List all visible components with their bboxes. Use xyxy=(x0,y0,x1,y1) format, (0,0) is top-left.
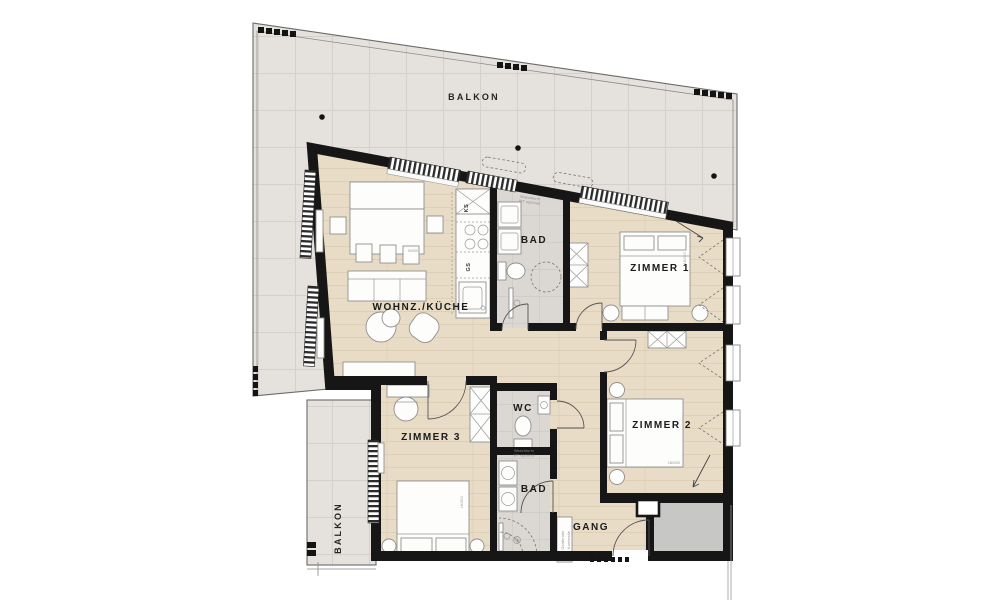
dim-bed-zimmer3: 180/200 xyxy=(460,496,464,508)
balcony-door-leaf-2 xyxy=(317,318,324,358)
dim-dining-table: 90/200 xyxy=(408,249,418,253)
label-wohnzimmer: WOHNZ./KÜCHE xyxy=(373,300,470,313)
window-zimmer3-left xyxy=(368,440,379,523)
label-bad-lower: BAD xyxy=(521,484,547,495)
label-zimmer3: ZIMMER 3 xyxy=(401,432,461,443)
label-gang: GANG xyxy=(573,522,609,533)
label-wc: WC xyxy=(513,403,533,414)
floor-plan-drawing: BALKON BALKON WOHNZ./KÜCHE BAD ZIMMER 1 … xyxy=(0,0,1000,616)
balcony-door-leaf-3 xyxy=(378,443,384,473)
toilet-bowl xyxy=(507,263,525,279)
note-washtower-lower: Waschturm WT optional xyxy=(513,449,534,457)
floor-plan-page: BALKON BALKON WOHNZ./KÜCHE BAD ZIMMER 1 … xyxy=(0,0,1000,616)
label-zimmer2: ZIMMER 2 xyxy=(632,420,692,431)
label-bad-upper: BAD xyxy=(521,235,547,246)
sofa xyxy=(348,271,426,301)
label-balkon-top: BALKON xyxy=(448,92,500,102)
building-core-area xyxy=(654,500,724,554)
kitchen-counter xyxy=(452,189,490,318)
svg-text:Waschturm: Waschturm xyxy=(514,449,534,453)
dim-bed-zimmer2: 180/200 xyxy=(668,461,680,465)
balcony-door-leaf-1 xyxy=(316,210,323,252)
shaft-box xyxy=(637,500,659,516)
wardrobe-zimmer3 xyxy=(470,387,492,442)
shower-fixture xyxy=(509,288,513,318)
shower-fixture-2 xyxy=(499,523,503,551)
label-zimmer1: ZIMMER 1 xyxy=(630,263,690,274)
label-kommode: Kommode xyxy=(567,531,571,549)
dim-bed-zimmer1: 180/200 xyxy=(683,252,687,264)
label-fridge: KS xyxy=(464,204,470,213)
svg-text:WT optional: WT optional xyxy=(513,453,534,457)
entrance-opening xyxy=(612,550,648,562)
label-dishwasher: GS xyxy=(466,263,472,272)
label-balkon-left: BALKON xyxy=(333,502,343,554)
wardrobe-zimmer2 xyxy=(648,331,686,348)
bed-zimmer3 xyxy=(382,481,484,557)
toilet-tank xyxy=(498,262,506,280)
label-garderobe: Garderobe xyxy=(561,531,565,550)
